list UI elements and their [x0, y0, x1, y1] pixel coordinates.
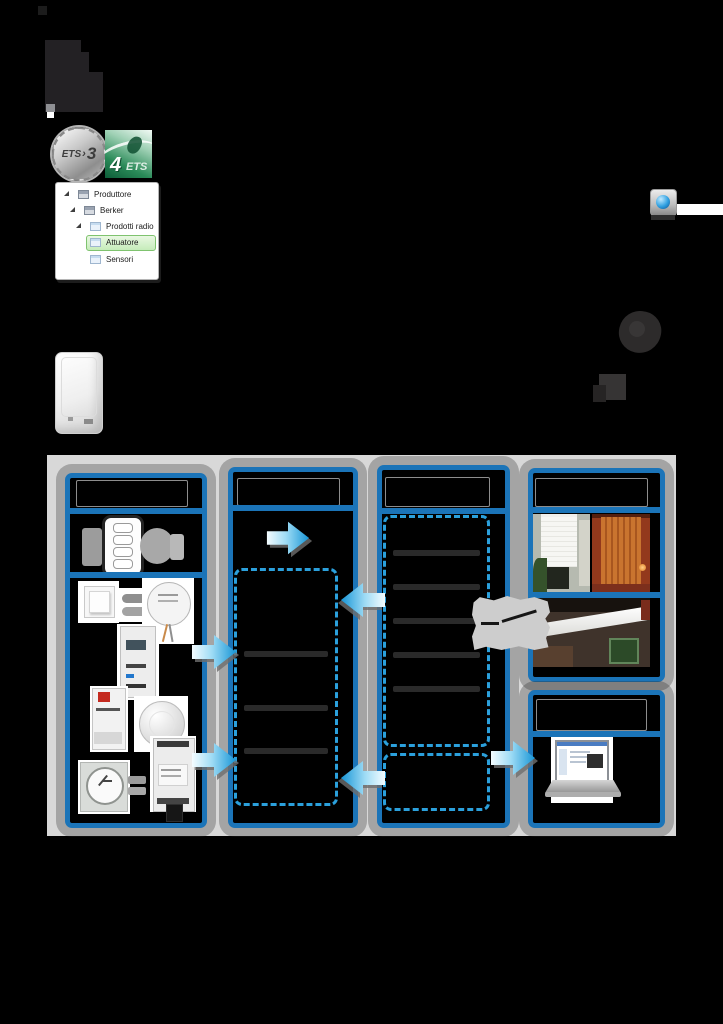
expander-icon [70, 207, 75, 212]
expander-icon [76, 223, 81, 228]
terminal-row [157, 741, 189, 747]
analog-timer-photo [78, 760, 130, 814]
remote-button [113, 535, 133, 545]
floor [592, 584, 650, 592]
catalog-icon [90, 238, 101, 247]
catalog-icon [90, 255, 101, 264]
device-cover-line [61, 357, 97, 417]
application-icon [78, 190, 89, 199]
module-wire [168, 624, 173, 642]
window-dark-pane [587, 754, 603, 768]
catalog-tree-panel: Produttore Berker Prodotti radio Attuato… [55, 182, 159, 280]
terminal-strip [94, 732, 122, 744]
label-line [161, 769, 181, 771]
tree-item-label: Prodotti radio [106, 222, 154, 231]
module-label-line [158, 594, 178, 596]
faint-logo-square-notch [593, 385, 606, 402]
tree-item-label: Berker [100, 206, 124, 215]
ets3-logo: ETS › 3 [52, 127, 106, 181]
catalog-icon [90, 222, 101, 231]
expander-icon [64, 191, 69, 196]
cable-connector [166, 804, 183, 822]
photo-fragment [82, 528, 102, 566]
ets4-text: ETS [126, 161, 147, 173]
divider [69, 508, 203, 514]
actuator-list [383, 515, 490, 747]
module-body [147, 582, 191, 626]
ets3-text: ETS [62, 149, 81, 160]
list-row [240, 711, 332, 748]
timer-dial [86, 767, 124, 805]
ets4-number: 4 [110, 154, 121, 177]
radio-bus-list [234, 568, 338, 806]
module-label-line [158, 600, 178, 602]
list-row [389, 556, 484, 584]
page-corner-mark [38, 6, 47, 15]
blue-sphere-icon [656, 195, 670, 209]
flow-arrow-right [190, 631, 238, 673]
flow-arrow-left [339, 579, 387, 621]
column2-header [237, 478, 340, 506]
terminal-row [126, 684, 146, 688]
list-row [389, 692, 484, 720]
list-row [389, 590, 484, 618]
application-icon [84, 206, 95, 215]
actuator-extra-box [383, 753, 490, 811]
terminal-row [96, 708, 120, 711]
window-line [570, 761, 586, 763]
dark-blob [45, 40, 81, 52]
green-window [609, 638, 639, 664]
dial-hand [102, 780, 112, 782]
tree-item-sensori: Sensori [56, 252, 156, 267]
list-row [389, 658, 484, 686]
timer-display [126, 640, 146, 650]
tree-item-berker: Berker [56, 203, 156, 218]
list-row [240, 657, 332, 705]
switch-symbol-icon [472, 596, 550, 650]
window-sidebar [559, 749, 567, 775]
remote-button [113, 547, 133, 557]
ets3-chevron: › [82, 148, 86, 160]
shutter-slats [601, 517, 641, 585]
wall-switch-photo [78, 581, 119, 623]
tree-item-label: Sensori [106, 255, 133, 264]
column-transmitters [65, 473, 207, 828]
ets3-version: 3 [87, 144, 96, 164]
connector-bar [128, 776, 146, 784]
switch-rocker [89, 591, 110, 613]
connector-bar [128, 787, 146, 795]
tree-item-label: Attuatore [106, 238, 138, 247]
divider [381, 508, 506, 514]
radio-waves-icon [170, 534, 184, 560]
tree-item-attuatore: Attuatore [56, 235, 156, 250]
system-diagram [47, 455, 676, 836]
red-detail [641, 600, 650, 620]
window-titlebar [557, 742, 607, 746]
knob-ring [149, 711, 175, 737]
wall-pillar [579, 520, 590, 586]
tree-item-produttore: Produttore [56, 187, 156, 202]
awning-photo [533, 598, 650, 667]
divider [232, 505, 354, 511]
list-row [389, 624, 484, 652]
column-loads [528, 468, 665, 682]
radio-waves-icon [140, 528, 174, 564]
module-wire [162, 624, 168, 642]
orange-shutters-photo [592, 514, 650, 592]
column-programming [528, 690, 665, 828]
ets-app-icon [650, 189, 677, 216]
list-row [389, 522, 484, 550]
laptop-photo [551, 737, 613, 803]
dark-blob [45, 52, 89, 72]
faint-logo-circle-inner [629, 321, 645, 337]
ets4-logo: 4 ETS [105, 130, 152, 178]
column1-header [76, 480, 188, 507]
laptop-front-edge [545, 792, 621, 797]
contact-lever [502, 610, 537, 623]
device-connector [84, 419, 93, 424]
flow-arrow-right [190, 739, 238, 781]
flow-arrow-right [265, 517, 311, 559]
divider [532, 507, 661, 513]
white-notch [47, 112, 54, 118]
device-connector [68, 417, 73, 421]
flow-arrow-right [489, 737, 537, 779]
flow-arrow-left [339, 757, 387, 799]
laptop-screen [555, 740, 609, 782]
radio-actuator-photo [55, 352, 103, 434]
window-line [570, 751, 590, 753]
tree-item-label: Produttore [94, 190, 131, 199]
remote-control-photo [102, 515, 144, 577]
red-button [98, 692, 110, 702]
list-row [240, 754, 332, 786]
grey-notch [46, 104, 55, 112]
list-row [240, 575, 332, 651]
blue-keys [126, 674, 134, 678]
remote-button [113, 523, 133, 533]
greenery [533, 558, 547, 592]
label-line [161, 775, 181, 777]
list-row [389, 760, 484, 800]
remote-button [113, 559, 133, 569]
icon-shadow [651, 215, 675, 220]
terminal-row [126, 664, 146, 668]
brick-wall [533, 646, 573, 667]
din-module-photo [90, 686, 128, 752]
document-page: ETS › 3 4 ETS Produttore Berker Prodotti… [0, 0, 723, 1024]
roller-blind-photo [533, 514, 590, 592]
highlight-strip [677, 204, 723, 215]
tree-item-prodotti-radio: Prodotti radio [56, 219, 156, 234]
contact-line [481, 622, 499, 625]
column3-header [385, 477, 490, 507]
column4-header [535, 478, 648, 507]
column5-header [536, 699, 647, 731]
lamp-glow [639, 564, 646, 571]
